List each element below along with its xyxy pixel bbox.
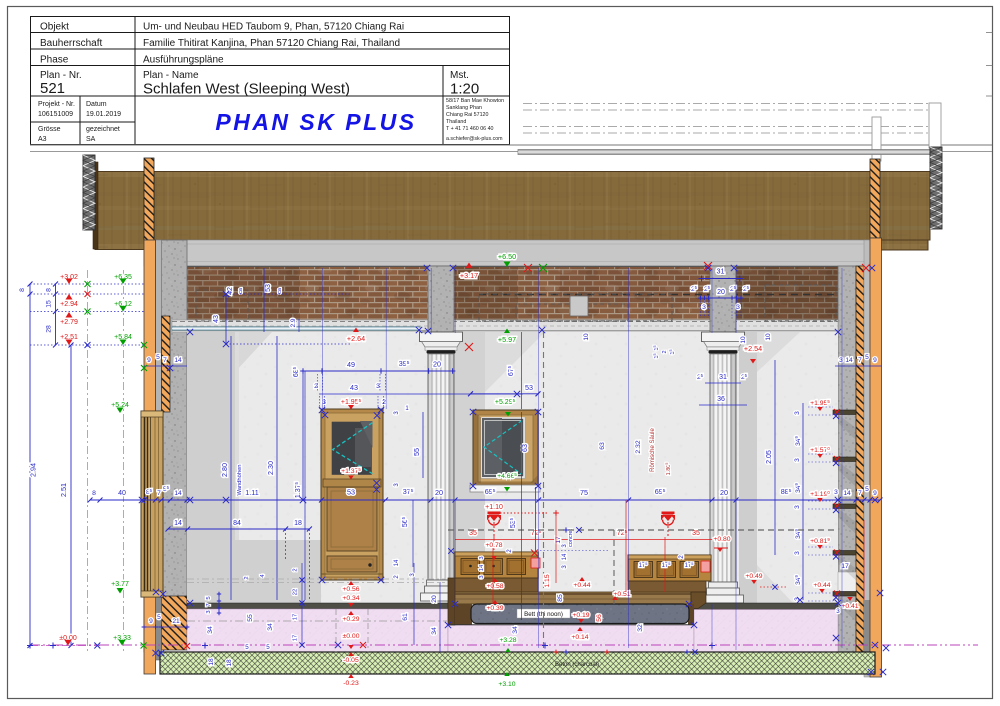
svg-text:18: 18 [226, 659, 233, 667]
svg-text:17: 17 [293, 614, 299, 620]
svg-text:Schlafen West (Sleeping West): Schlafen West (Sleeping West) [143, 81, 350, 98]
svg-text:2.30: 2.30 [266, 461, 275, 475]
svg-text:+3.10: +3.10 [498, 681, 515, 688]
svg-text:+0.44: +0.44 [573, 582, 590, 589]
svg-text:35: 35 [469, 530, 477, 537]
svg-text:14: 14 [394, 559, 400, 566]
svg-text:T + 41 71 460 06 40: T + 41 71 460 06 40 [446, 126, 494, 132]
svg-text:20: 20 [720, 488, 728, 497]
svg-text:+0.78: +0.78 [485, 542, 502, 549]
svg-text:+0.39: +0.39 [486, 605, 503, 612]
svg-text:58/17 Ban Mae Khowton: 58/17 Ban Mae Khowton [446, 98, 504, 104]
svg-text:5: 5 [266, 644, 270, 651]
svg-text:3: 3 [839, 357, 843, 364]
svg-text:2: 2 [662, 350, 668, 353]
svg-text:concret: concret [568, 529, 574, 548]
svg-text:Plan - Name: Plan - Name [143, 70, 199, 81]
svg-text:43: 43 [350, 383, 358, 392]
svg-text:-0.23: -0.23 [343, 680, 359, 687]
svg-text:+0.34: +0.34 [342, 595, 359, 602]
svg-text:PHAN SK PLUS: PHAN SK PLUS [215, 109, 416, 135]
svg-text:56: 56 [596, 614, 603, 622]
svg-text:Chiang Rai 57120: Chiang Rai 57120 [446, 112, 488, 118]
svg-text:+1.10: +1.10 [485, 504, 503, 511]
svg-text:3: 3 [702, 304, 706, 311]
svg-text:+0.51: +0.51 [613, 591, 630, 598]
svg-text:Um- und Neubau HED Taubom 9, P: Um- und Neubau HED Taubom 9, Phan, 57120… [143, 22, 404, 33]
svg-text:22: 22 [293, 589, 299, 595]
svg-text:+3.77: +3.77 [111, 581, 129, 588]
svg-text:14: 14 [843, 490, 851, 497]
svg-text:ca: ca [277, 287, 283, 294]
svg-text:40: 40 [118, 490, 126, 497]
svg-text:21: 21 [172, 618, 180, 625]
svg-text:Phase: Phase [40, 55, 69, 66]
svg-text:61: 61 [402, 613, 409, 621]
svg-text:Mst.: Mst. [450, 70, 469, 81]
svg-text:Wandhöhen: Wandhöhen [237, 464, 243, 495]
svg-text:53: 53 [525, 383, 533, 392]
svg-text:53: 53 [347, 488, 355, 497]
svg-text:Sanklang Phan: Sanklang Phan [446, 105, 482, 111]
svg-text:Familie Thitirat Kanjina, Phan: Familie Thitirat Kanjina, Phan 57120 Chi… [143, 38, 400, 49]
svg-text:+1.190: +1.190 [810, 490, 830, 498]
svg-text:7: 7 [163, 357, 167, 364]
svg-text:106151009: 106151009 [38, 111, 73, 118]
svg-text:8: 8 [92, 490, 96, 497]
svg-text:+2.54: +2.54 [744, 344, 762, 353]
svg-text:+3.17: +3.17 [460, 271, 478, 280]
svg-text:+0.19: +0.19 [572, 612, 589, 619]
svg-text:20: 20 [431, 595, 438, 603]
svg-text:Objekt: Objekt [40, 22, 69, 33]
svg-text:19.01.2019: 19.01.2019 [86, 111, 121, 118]
svg-text:3: 3 [479, 575, 485, 578]
svg-text:Bauherrschaft: Bauherrschaft [40, 38, 102, 49]
svg-text:18: 18 [208, 658, 215, 666]
svg-text:2.32: 2.32 [635, 440, 642, 453]
svg-text:+2.79: +2.79 [60, 319, 78, 326]
svg-text:8: 8 [19, 288, 26, 292]
svg-text:15: 15 [46, 300, 53, 308]
svg-text:7: 7 [858, 490, 862, 497]
svg-text:10: 10 [740, 336, 747, 344]
svg-text:14: 14 [562, 553, 568, 560]
svg-text:5: 5 [157, 614, 161, 621]
svg-text:+0.58: +0.58 [486, 583, 503, 590]
svg-text:+1.375: +1.375 [341, 467, 361, 475]
svg-text:2: 2 [382, 399, 386, 406]
svg-text:14: 14 [174, 357, 182, 364]
svg-text:32: 32 [637, 624, 644, 632]
svg-text:14: 14 [174, 520, 182, 527]
svg-text:+1.955: +1.955 [341, 398, 362, 406]
svg-text:20: 20 [435, 488, 443, 497]
svg-text:5: 5 [156, 354, 160, 361]
svg-text:9: 9 [873, 357, 877, 364]
svg-text:3: 3 [736, 304, 740, 311]
svg-text:14: 14 [479, 564, 485, 571]
svg-text:9: 9 [149, 618, 153, 625]
svg-text:49: 49 [347, 360, 355, 369]
svg-text:2.51: 2.51 [59, 483, 68, 497]
svg-text:3: 3 [794, 411, 801, 415]
svg-text:Römische Säule: Römische Säule [650, 427, 656, 471]
svg-text:SA: SA [86, 136, 96, 143]
svg-text:31: 31 [717, 267, 725, 276]
svg-text:2.94: 2.94 [29, 463, 38, 477]
svg-text:±0.00: ±0.00 [343, 633, 360, 640]
svg-text:20: 20 [717, 289, 725, 296]
svg-text:+0.14: +0.14 [571, 634, 588, 641]
svg-text:2: 2 [293, 568, 299, 571]
svg-text:+5.97: +5.97 [498, 335, 516, 344]
svg-text:28: 28 [46, 325, 53, 333]
svg-text:+1.955: +1.955 [810, 399, 830, 407]
svg-text:2.80: 2.80 [220, 463, 229, 477]
svg-text:Projekt - Nr.: Projekt - Nr. [38, 101, 75, 108]
svg-text:3: 3 [794, 458, 801, 462]
svg-text:34: 34 [512, 626, 519, 634]
svg-text:31: 31 [719, 374, 727, 381]
svg-text:53: 53 [265, 284, 272, 292]
svg-text:14: 14 [174, 490, 182, 497]
svg-text:+0.80: +0.80 [713, 536, 730, 543]
svg-text:10: 10 [583, 333, 590, 341]
svg-text:+2.64: +2.64 [347, 334, 365, 343]
svg-text:9: 9 [147, 357, 151, 364]
svg-text:10: 10 [765, 333, 772, 341]
svg-text:20: 20 [433, 360, 441, 369]
svg-text:3: 3 [794, 505, 801, 509]
svg-text:Grösse: Grösse [38, 126, 61, 133]
svg-text:3: 3 [794, 551, 801, 555]
svg-text:Thailand: Thailand [446, 119, 466, 125]
svg-text:7: 7 [206, 603, 212, 606]
svg-text:43: 43 [213, 315, 220, 323]
svg-text:34: 34 [207, 626, 214, 634]
svg-text:-0.05: -0.05 [343, 657, 359, 664]
svg-text:18: 18 [294, 520, 302, 527]
svg-text:+1.570: +1.570 [810, 446, 830, 454]
svg-text:+0.44: +0.44 [813, 582, 830, 589]
svg-text:1.11: 1.11 [245, 488, 258, 497]
svg-text:8: 8 [46, 288, 53, 292]
svg-text:+6.50: +6.50 [498, 252, 516, 261]
svg-text:1.15: 1.15 [544, 574, 551, 587]
svg-text:14: 14 [845, 357, 853, 364]
svg-text:5: 5 [865, 354, 869, 361]
svg-text:7: 7 [858, 357, 862, 364]
svg-text:34: 34 [267, 623, 274, 631]
svg-text:3: 3 [834, 489, 838, 496]
svg-text:Datum: Datum [86, 101, 107, 108]
svg-text:85: 85 [557, 594, 564, 602]
svg-text:A3: A3 [38, 136, 47, 143]
svg-text:Beton (charcoal): Beton (charcoal) [555, 662, 599, 668]
svg-text:5: 5 [245, 644, 249, 651]
svg-text:1:20: 1:20 [450, 81, 479, 98]
svg-text:3: 3 [376, 383, 380, 390]
svg-text:36: 36 [717, 396, 725, 403]
svg-text:17: 17 [293, 635, 299, 641]
svg-text:5: 5 [206, 596, 212, 599]
svg-text:gezeichnet: gezeichnet [86, 126, 120, 133]
svg-text:35: 35 [692, 530, 700, 537]
svg-text:7: 7 [157, 490, 161, 497]
svg-text:+3.28: +3.28 [499, 637, 516, 644]
svg-text:9: 9 [873, 490, 877, 497]
svg-text:55: 55 [247, 614, 254, 622]
svg-text:+0.819: +0.819 [810, 537, 830, 545]
svg-text:a.schiefer@sk-plus.com: a.schiefer@sk-plus.com [446, 136, 503, 142]
svg-text:2.05: 2.05 [766, 450, 773, 464]
svg-text:2.9: 2.9 [290, 318, 297, 327]
svg-text:ca: ca [238, 287, 244, 294]
svg-text:+0.56: +0.56 [342, 586, 359, 593]
svg-text:63: 63 [599, 442, 606, 450]
svg-text:3: 3 [206, 610, 212, 613]
svg-text:3: 3 [479, 556, 485, 559]
svg-text:+4.665: +4.665 [497, 472, 517, 480]
svg-text:+0.49: +0.49 [745, 573, 762, 580]
svg-text:34: 34 [431, 627, 438, 635]
svg-text:+0.29: +0.29 [342, 616, 359, 623]
svg-text:Ausführungspläne: Ausführungspläne [143, 55, 224, 66]
svg-text:5: 5 [865, 486, 869, 493]
svg-text:55: 55 [412, 448, 421, 456]
svg-text:84: 84 [233, 520, 241, 527]
svg-text:17: 17 [841, 563, 849, 570]
svg-text:521: 521 [40, 80, 65, 97]
svg-text:3: 3 [836, 608, 840, 615]
svg-text:+5.295: +5.295 [495, 398, 516, 406]
svg-text:75: 75 [580, 488, 588, 497]
svg-text:+0.41: +0.41 [841, 603, 858, 610]
svg-text:+2.94: +2.94 [60, 301, 78, 308]
